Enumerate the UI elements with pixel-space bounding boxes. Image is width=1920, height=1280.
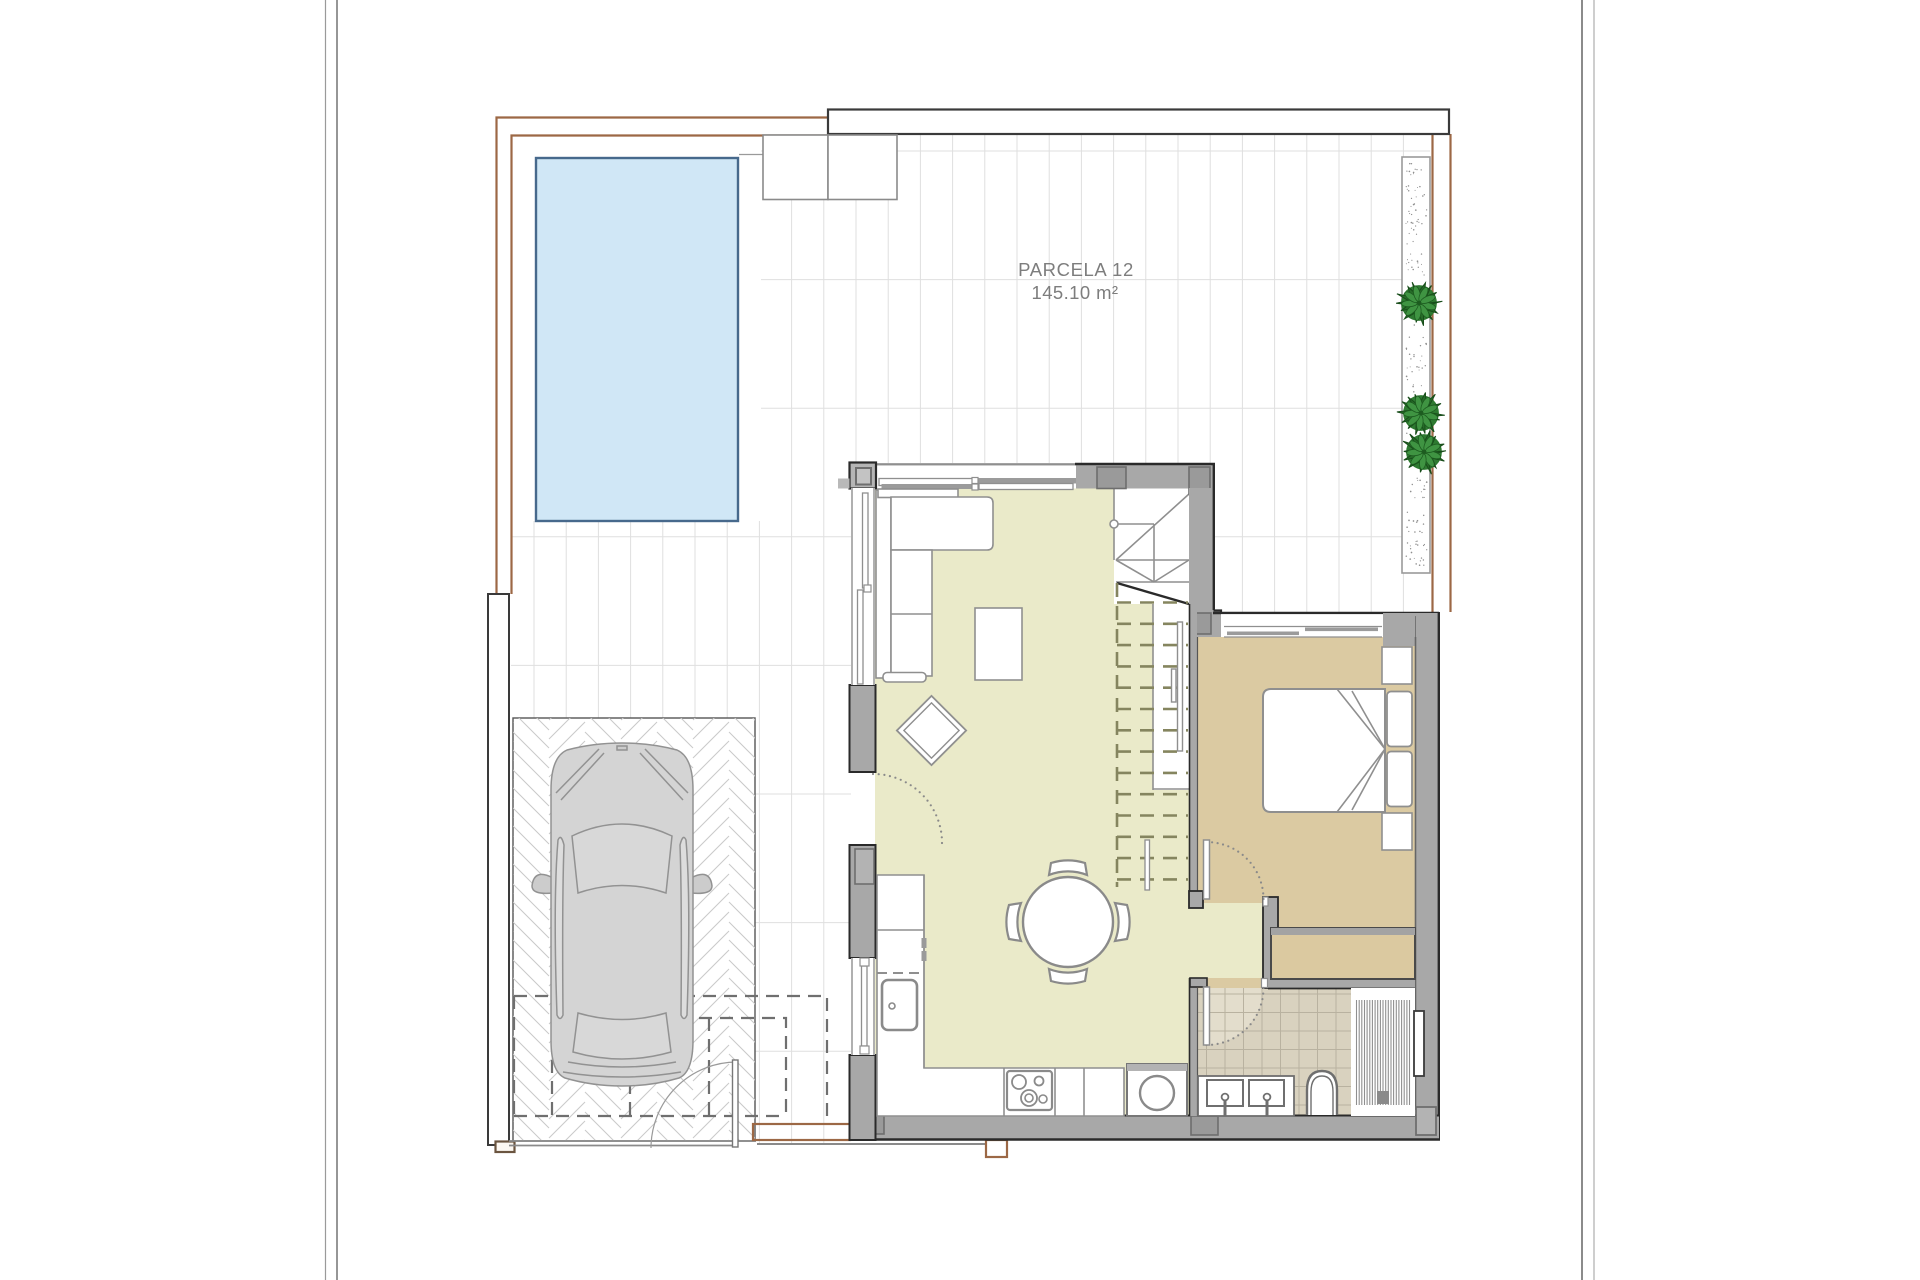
- svg-text:145.10 m²: 145.10 m²: [1032, 282, 1119, 303]
- svg-text:PARCELA 12: PARCELA 12: [1018, 259, 1134, 280]
